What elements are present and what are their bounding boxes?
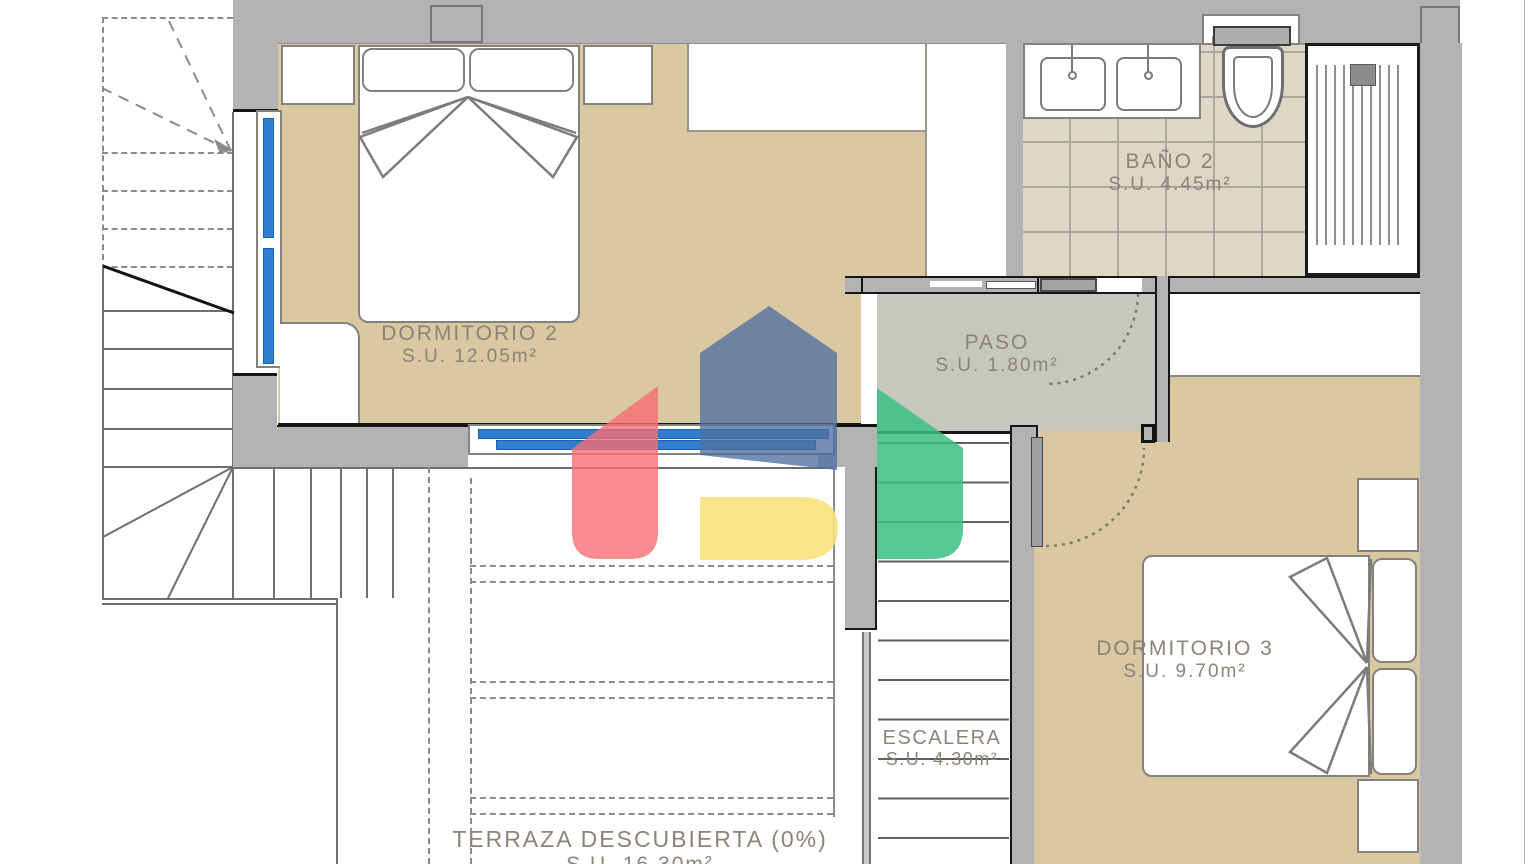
wall-southwest-pier — [233, 373, 277, 467]
stair-tread — [102, 310, 233, 312]
nightstand — [1357, 478, 1419, 552]
wall-dormitorio2-south — [277, 425, 468, 467]
room-name: DORMITORIO 2 — [320, 322, 620, 346]
wall-east — [1420, 43, 1462, 864]
room-area: S.U. 4.30m² — [866, 749, 1018, 769]
toilet-cistern — [1213, 26, 1291, 46]
shower-stripes — [1316, 65, 1406, 245]
wall-paso-east — [1155, 276, 1170, 442]
stair-riser — [392, 468, 394, 598]
stair-dashed-tread — [102, 266, 233, 268]
stair-dashed-border-left — [102, 17, 104, 270]
window-south-glazing-1 — [478, 429, 829, 439]
dormitorio-2-wardrobe-area — [687, 43, 925, 132]
pillow — [362, 48, 465, 92]
room-area: S.U. 9.70m² — [1035, 661, 1335, 682]
stair-dashed-border-top — [102, 17, 233, 19]
room-name: DORMITORIO 3 — [1035, 637, 1335, 661]
pillow — [1372, 668, 1417, 775]
room-label-escalera: ESCALERA S.U. 4.30m² — [866, 727, 1018, 770]
sink-tap-right-stem — [1147, 45, 1149, 73]
room-name: TERRAZA DESCUBIERTA (0%) — [425, 827, 855, 853]
room-name: ESCALERA — [866, 727, 1018, 749]
bano-door-opening — [1095, 278, 1142, 292]
lower-floor-outline — [336, 598, 338, 864]
sheet-border-line — [1524, 0, 1525, 864]
window-south-glazing-2 — [496, 440, 816, 450]
room-area: S.U. 16.30m² — [425, 853, 855, 864]
sink-tap-right — [1144, 71, 1153, 80]
shower-drain — [1350, 64, 1376, 86]
stair-riser — [340, 468, 342, 598]
nightstand — [281, 45, 355, 105]
pillow — [469, 48, 574, 92]
stair-dashed-tread — [102, 190, 233, 192]
wall-northwest-pier — [233, 0, 278, 112]
stair-cut-line — [103, 266, 234, 313]
stair-tread — [102, 348, 233, 350]
terraza-dashed-border-1 — [428, 467, 430, 864]
room-label-paso: PASO S.U. 1.80m² — [877, 331, 1117, 376]
nightstand — [1357, 779, 1419, 853]
window-west-glazing-2 — [263, 248, 274, 364]
nightstand — [583, 45, 653, 105]
pillow — [1372, 558, 1417, 663]
sliding-door-panel-2 — [986, 281, 1036, 289]
stair-tread — [102, 466, 233, 468]
terraza-right-edge — [833, 467, 835, 817]
bano-door-leaf — [1040, 278, 1097, 292]
terraza-dashed-line — [470, 797, 833, 799]
stair-bottom-edge-2 — [102, 603, 338, 605]
stair-tread — [102, 428, 233, 430]
terraza-dashed-border-2 — [470, 478, 472, 864]
stair-winder-dashed-lines — [104, 19, 231, 151]
watermark-yellow-shape — [700, 497, 838, 560]
room-area: S.U. 1.80m² — [877, 355, 1117, 376]
room-label-dormitorio-3: DORMITORIO 3 S.U. 9.70m² — [1035, 637, 1335, 682]
wall-door-jamb-dormitorio3 — [1141, 424, 1155, 443]
stair-bottom-edge — [102, 598, 338, 600]
dormitorio3-door-leaf — [1031, 437, 1043, 547]
room-area: S.U. 4.45m² — [1040, 174, 1300, 195]
stair-riser — [366, 468, 368, 598]
stair-riser — [310, 468, 312, 598]
dormitorio-2-entry-strip — [925, 43, 1006, 280]
sink-basin-left — [1040, 57, 1106, 111]
room-name: PASO — [877, 331, 1117, 355]
stair-left-edge — [102, 268, 104, 600]
floor-plan-canvas: DORMITORIO 2 S.U. 12.05m² BAÑO 2 S.U. 4.… — [0, 0, 1536, 864]
terraza-dashed-line — [470, 697, 833, 699]
escalera-treads — [878, 442, 1009, 844]
stair-winder-lines — [103, 467, 233, 598]
terraza-dashed-line — [470, 681, 833, 683]
wall-dormitorio2-bano — [1006, 43, 1023, 280]
toilet-bowl-inner — [1233, 56, 1273, 118]
room-label-terraza: TERRAZA DESCUBIERTA (0%) S.U. 16.30m² — [425, 827, 855, 864]
room-label-bano-2: BAÑO 2 S.U. 4.45m² — [1040, 150, 1300, 195]
stair-dashed-tread — [102, 152, 233, 154]
dormitorio-3-wardrobe-area — [1170, 293, 1420, 377]
stair-right-edge — [232, 112, 234, 600]
sliding-door-panel-1 — [930, 281, 982, 287]
terraza-dashed-line — [470, 581, 833, 583]
terraza-top-edge — [233, 467, 833, 469]
stair-dashed-tread — [102, 228, 233, 230]
sink-tap-left-stem — [1071, 45, 1073, 73]
sink-basin-right — [1116, 57, 1182, 111]
room-label-dormitorio-2: DORMITORIO 2 S.U. 12.05m² — [320, 322, 620, 367]
terraza-dashed-line — [470, 565, 833, 567]
stair-tread — [102, 388, 233, 390]
terraza-dashed-line — [470, 813, 833, 815]
room-area: S.U. 12.05m² — [320, 346, 620, 367]
wall-north-pillar — [430, 5, 483, 43]
stair-riser — [273, 468, 275, 598]
window-west-glazing-1 — [263, 118, 274, 238]
sink-tap-left — [1068, 71, 1077, 80]
room-name: BAÑO 2 — [1040, 150, 1300, 174]
